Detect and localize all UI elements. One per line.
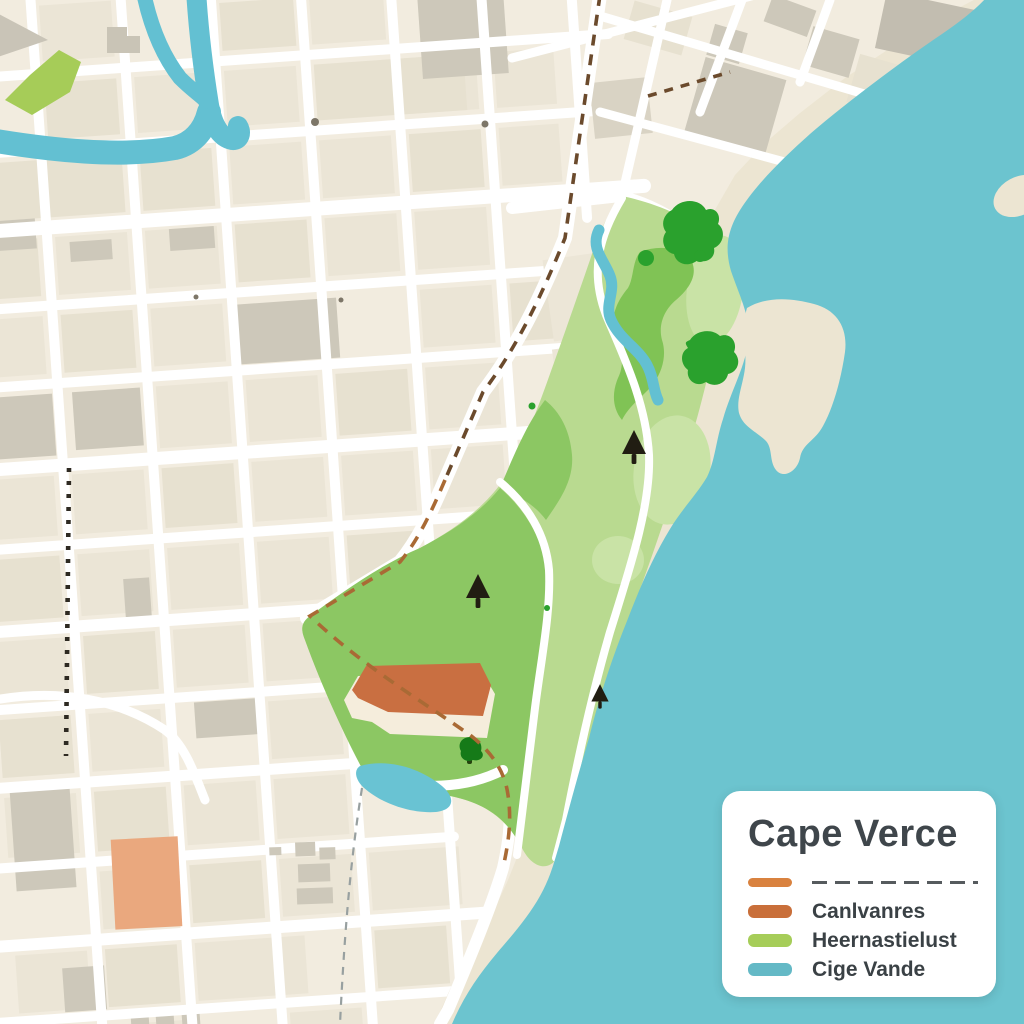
- legend-row-park: Heernastielust: [748, 926, 996, 955]
- legend-row-buildings: Canlvanres: [748, 897, 996, 926]
- water-swatch: [748, 963, 792, 976]
- legend-card: Cape Verce Canlvanres Heernastielust Cig…: [722, 791, 996, 997]
- legend-label: Cige Vande: [812, 958, 925, 982]
- legend-label: Heernastielust: [812, 929, 957, 953]
- legend-title: Cape Verce: [748, 813, 996, 856]
- park-swatch: [748, 934, 792, 947]
- buildings-swatch: [748, 905, 792, 918]
- map-canvas: Cape Verce Canlvanres Heernastielust Cig…: [0, 0, 1024, 1024]
- legend-row-route: [748, 868, 996, 897]
- orange-block: [111, 836, 183, 929]
- legend-row-water: Cige Vande: [748, 955, 996, 984]
- route-dash-line: [812, 881, 978, 885]
- route-swatch: [748, 878, 792, 887]
- legend-label: Canlvanres: [812, 900, 925, 924]
